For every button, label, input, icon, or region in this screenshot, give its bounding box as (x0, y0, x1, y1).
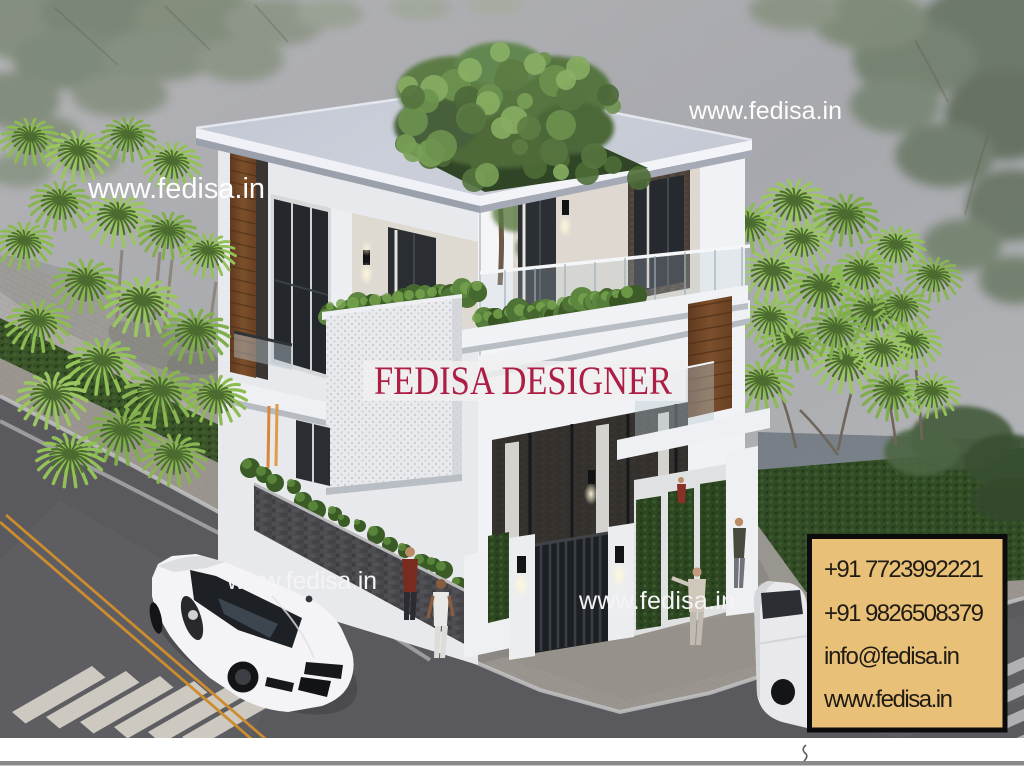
svg-text:www.fedisa.in: www.fedisa.in (578, 587, 735, 615)
svg-text:www.fedisa.in: www.fedisa.in (226, 567, 377, 595)
svg-text:FEDISA DESIGNER: FEDISA DESIGNER (374, 358, 672, 403)
svg-text:www.fedisa.in: www.fedisa.in (688, 97, 842, 125)
svg-text:www.fedisa.in: www.fedisa.in (823, 686, 953, 713)
svg-text:+91 9826508379: +91 9826508379 (824, 600, 984, 627)
svg-text:info@fedisa.in: info@fedisa.in (824, 643, 960, 670)
svg-text:+91 7723992221: +91 7723992221 (824, 556, 984, 583)
svg-text:www.fedisa.in: www.fedisa.in (87, 173, 265, 205)
